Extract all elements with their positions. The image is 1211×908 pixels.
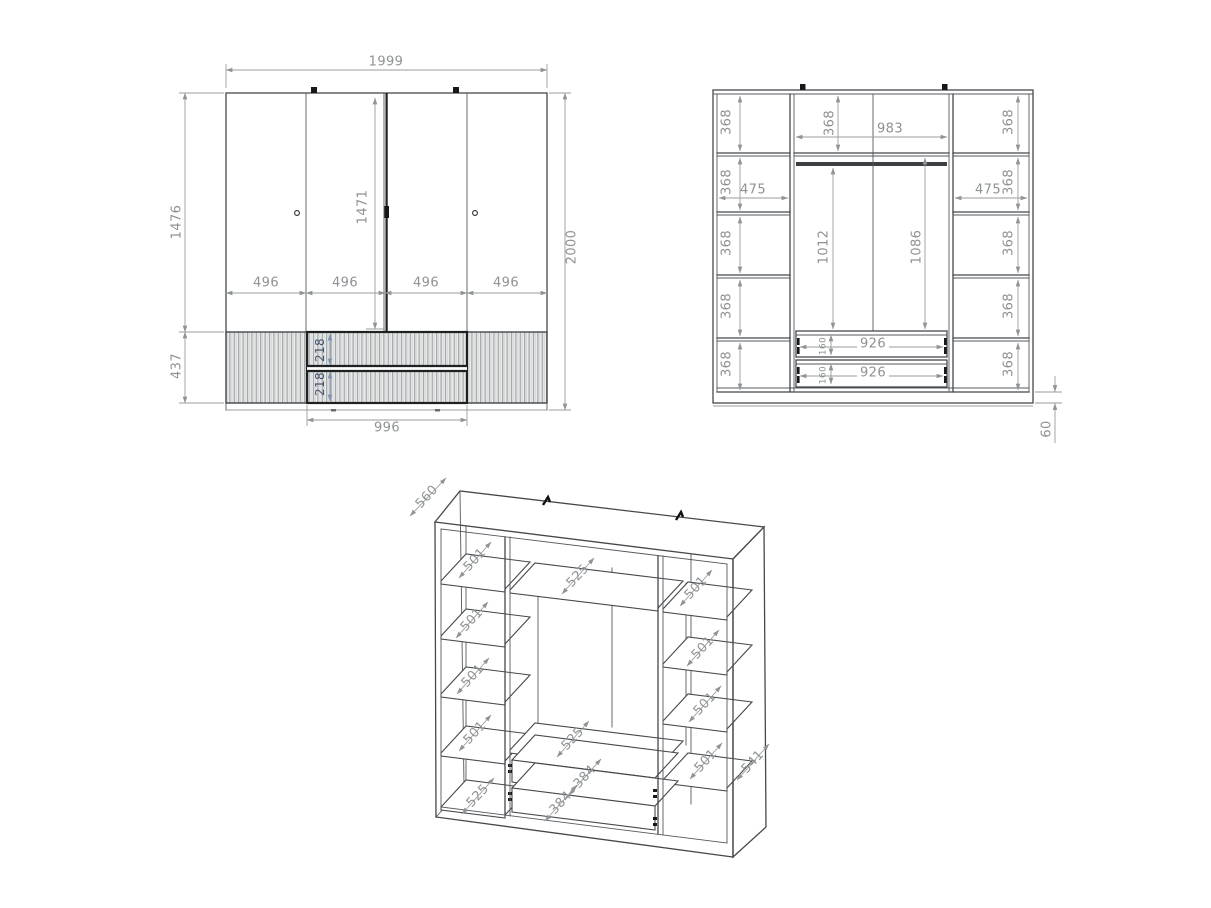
wardrobe-dimension-drawing	[0, 0, 1211, 908]
dim-int-drawer-height-1: 160	[820, 337, 829, 355]
dim-front-door-width-1: 496	[253, 277, 279, 290]
dim-int-left-cell-2: 368	[721, 169, 734, 195]
dim-int-center-width: 983	[877, 123, 903, 136]
dim-int-hang-height-left: 1012	[818, 230, 831, 265]
dim-int-right-width: 475	[975, 184, 1001, 197]
dim-int-drawer-width-2: 926	[857, 367, 889, 380]
dim-front-door-width-2: 496	[332, 277, 358, 290]
dim-int-left-cell-5: 368	[721, 351, 734, 377]
front-view	[179, 64, 571, 426]
dim-int-left-cell-1: 368	[721, 109, 734, 135]
perspective-center-top-shelf	[510, 563, 683, 611]
dim-int-plinth-height: 60	[1041, 420, 1054, 437]
dim-front-drawer-height-2: 218	[314, 372, 326, 396]
dim-front-drawer-height-1: 218	[314, 338, 326, 362]
dim-int-left-cell-4: 368	[721, 293, 734, 319]
dim-front-door-width-3: 496	[413, 277, 439, 290]
dim-int-right-cell-4: 368	[1003, 293, 1016, 319]
dim-int-right-cell-1: 368	[1003, 109, 1016, 135]
hinge-tab-icon	[453, 87, 459, 93]
dim-front-overall-width: 1999	[369, 56, 404, 69]
dim-int-drawer-width-1: 926	[857, 338, 889, 351]
perspective-drawers	[508, 735, 678, 830]
dim-int-hang-height-right: 1086	[911, 230, 924, 265]
dim-front-base-height: 437	[171, 353, 184, 379]
hinge-tab-icon	[311, 87, 317, 93]
technical-drawing-canvas: 1999 2000 1476 437 1471 496 496 496 496 …	[0, 0, 1211, 908]
dim-int-center-top-cell: 368	[824, 110, 837, 136]
dim-front-drawer-section-width: 996	[374, 422, 400, 435]
dim-int-right-cell-2: 368	[1003, 169, 1016, 195]
dim-front-door-width-4: 496	[493, 277, 519, 290]
dim-int-drawer-height-2: 160	[820, 366, 829, 384]
center-handle-icon	[385, 206, 390, 218]
dim-int-right-cell-3: 368	[1003, 230, 1016, 256]
hanging-rail	[796, 162, 947, 166]
dim-int-right-cell-5: 368	[1003, 351, 1016, 377]
door-knob-icon	[295, 211, 300, 216]
perspective-right-face	[733, 527, 766, 857]
dim-front-overall-height: 2000	[566, 230, 579, 265]
dim-int-left-width: 475	[740, 184, 766, 197]
door-knob-icon	[473, 211, 478, 216]
hinge-tab-icon	[800, 84, 806, 90]
hinge-tab-icon	[942, 84, 948, 90]
dim-int-left-cell-3: 368	[721, 230, 734, 256]
dim-front-inner-height: 1471	[357, 190, 370, 225]
interior-view	[713, 84, 1062, 443]
dim-front-door-height: 1476	[171, 205, 184, 240]
